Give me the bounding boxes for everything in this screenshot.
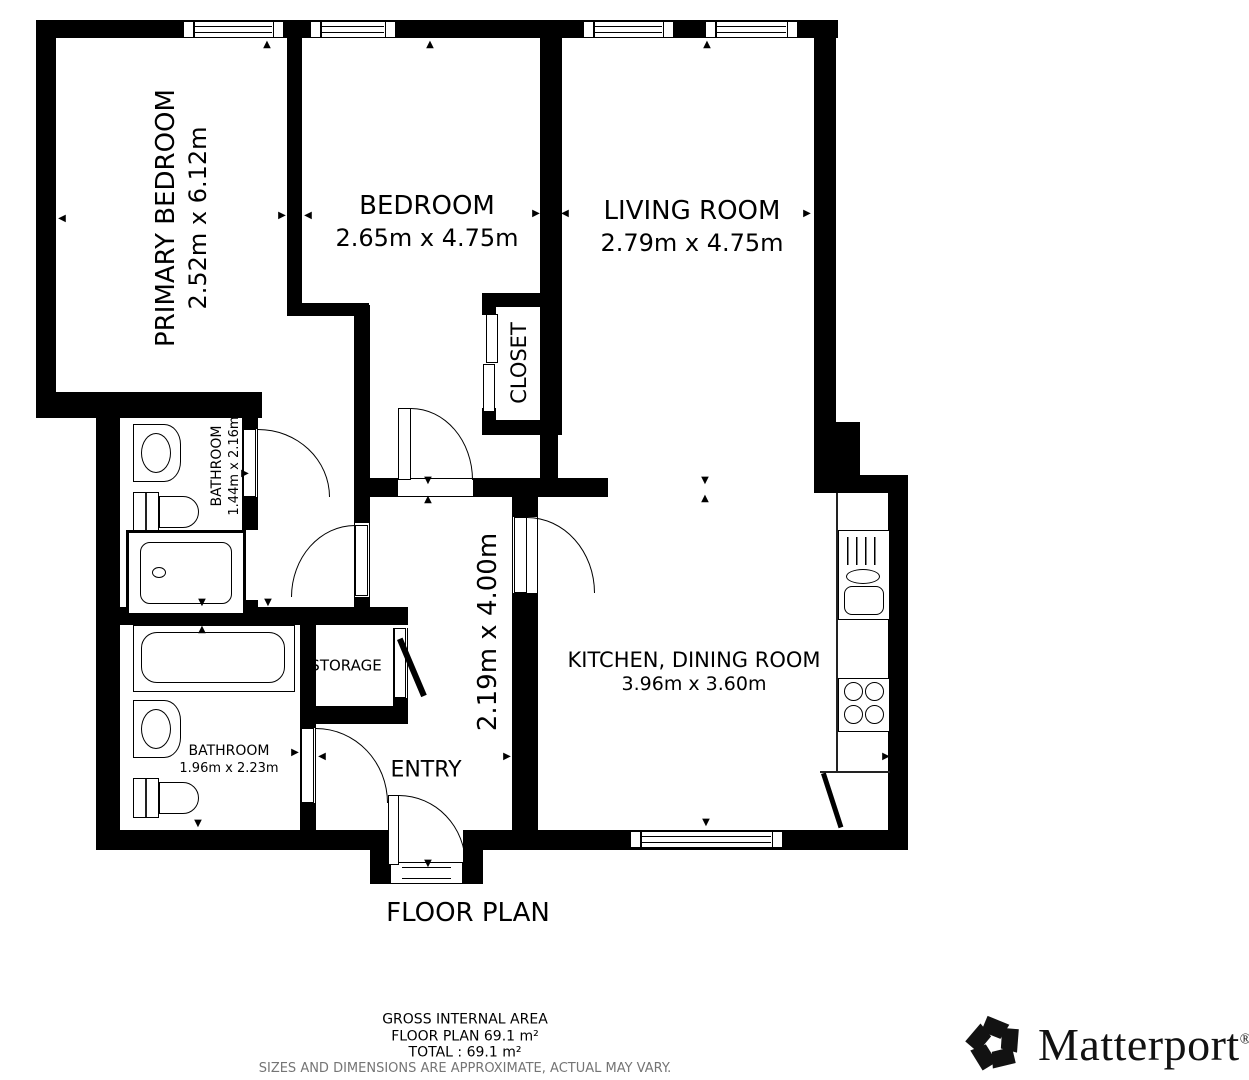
closet-sliding-panel-top	[486, 314, 498, 363]
floor-plan-canvas: ▲ ▲ ▲ ◀ ▶ ◀ ▶ ◀ ▶ ▲ ◀ ▶ ▼ ▼ ▲ ◀ ▶ ▼ ◀ ▶ …	[0, 0, 1249, 1080]
window-living-left	[583, 21, 674, 38]
kitchen-counter-edge-horizontal	[820, 771, 890, 773]
room-label-entry-dimensions: 2.19m x 4.00m	[472, 533, 505, 731]
burner-icon	[865, 705, 884, 724]
door-leaf-kitchen	[514, 517, 527, 593]
dimension-arrow-up-icon: ▲	[198, 625, 206, 635]
window-kitchen-bottom	[630, 831, 783, 848]
dimension-arrow-down-icon: ▼	[424, 859, 432, 869]
window-bedroom	[310, 21, 396, 38]
door-opening-bedroom	[398, 478, 473, 497]
dimension-arrow-right-icon: ▶	[882, 752, 890, 762]
sink-bathroom-lower	[133, 700, 181, 758]
dimension-arrow-down-icon: ▼	[424, 476, 432, 486]
wall-bathroom1-right-mid	[242, 497, 258, 530]
dimension-arrow-left-icon: ◀	[58, 214, 66, 224]
door-leaf-nook	[355, 525, 368, 596]
matterport-wordmark: Matterport®	[1038, 1018, 1249, 1071]
room-label-primary-bedroom: PRIMARY BEDROOM 2.52m x 6.12m	[150, 89, 213, 347]
wall-right-kitchen	[888, 475, 908, 850]
room-label-storage: STORAGE	[310, 657, 381, 676]
wall-closet-left-stub-bottom	[482, 408, 496, 435]
dimension-arrow-down-icon: ▼	[264, 598, 272, 608]
toilet-tank-bathroom-upper	[133, 492, 159, 532]
wall-storage-bottom	[300, 706, 408, 724]
dimension-arrow-up-icon: ▲	[703, 40, 711, 50]
wall-primary-bedroom-bottom	[36, 392, 262, 418]
door-swing-bedroom	[411, 408, 473, 480]
window-primary-bedroom	[183, 21, 284, 38]
dimension-arrow-left-icon: ◀	[528, 752, 536, 762]
drainboard-icon	[847, 537, 883, 565]
dimension-arrow-up-icon: ▲	[701, 494, 709, 504]
dimension-arrow-right-icon: ▶	[278, 211, 286, 221]
door-leaf-bathroom-lower	[301, 728, 314, 803]
registered-trademark-icon: ®	[1240, 1031, 1249, 1047]
sink-bowl-icon	[844, 586, 884, 615]
burner-icon	[844, 705, 863, 724]
matterport-pinwheel-icon	[962, 1012, 1026, 1076]
bathtub-bathroom-lower	[133, 625, 295, 692]
burner-icon	[844, 682, 863, 701]
wall-bedroom-living	[540, 20, 562, 435]
room-label-bathroom-upper: BATHROOM 1.44m x 2.16m	[209, 416, 243, 515]
window-living-right	[705, 21, 798, 38]
door-swing-bathroom-upper	[258, 429, 330, 497]
wall-vestibule-right	[463, 830, 483, 884]
floor-plan-area-value: FLOOR PLAN 69.1 m²	[391, 1028, 539, 1046]
wall-pillar-living	[836, 422, 860, 475]
dimension-arrow-right-icon: ▶	[503, 752, 511, 762]
room-label-closet: CLOSET	[506, 322, 532, 404]
dimension-arrow-down-icon: ▼	[701, 476, 709, 486]
wall-corridor-left-upper	[354, 305, 370, 523]
dimension-arrow-up-icon: ▲	[198, 405, 206, 415]
wall-step-right	[814, 475, 908, 493]
door-swing-entry	[399, 795, 466, 865]
dimension-arrow-down-icon: ▼	[702, 818, 710, 828]
door-swing-kitchen	[527, 517, 595, 593]
door-leaf-entry	[388, 795, 399, 865]
stove-cooktop	[838, 678, 890, 732]
sink-bathroom-upper	[133, 424, 181, 482]
dimension-arrow-right-icon: ▶	[291, 748, 299, 758]
shower-bathroom-upper	[126, 530, 246, 616]
dimension-arrow-left-icon: ◀	[561, 209, 569, 219]
dimension-arrow-up-icon: ▲	[426, 40, 434, 50]
wall-bottom-left	[96, 830, 372, 850]
wall-hall-top-stub	[369, 478, 398, 497]
matterport-logo: Matterport®	[962, 1012, 1249, 1076]
wall-bedroom-left	[287, 20, 302, 316]
closet-sliding-panel-bottom	[483, 364, 495, 412]
wall-bathroom1-right-top	[242, 392, 258, 429]
door-swing-nook	[291, 525, 355, 597]
burner-icon	[865, 682, 884, 701]
wall-vestibule-left	[370, 830, 390, 884]
sink-basin-icon	[141, 709, 171, 749]
total-area-value: TOTAL : 69.1 m²	[409, 1044, 522, 1062]
wall-left-upper	[36, 20, 56, 410]
kitchen-counter-diagonal	[821, 772, 843, 828]
wall-closet-left-stub-top	[482, 293, 496, 315]
dimension-arrow-left-icon: ◀	[318, 752, 326, 762]
door-leaf-bedroom	[398, 408, 411, 480]
dimension-arrow-up-icon: ▲	[424, 495, 432, 505]
wall-bathroom2-right-low	[300, 803, 316, 830]
door-leaf-bathroom-upper	[243, 429, 256, 497]
shower-drain-icon	[152, 567, 166, 578]
door-swing-bathroom-lower	[316, 728, 388, 803]
disclaimer-text: SIZES AND DIMENSIONS ARE APPROXIMATE, AC…	[259, 1061, 672, 1077]
room-label-living-room: LIVING ROOM 2.79m x 4.75m	[600, 195, 783, 258]
kitchen-sink-unit	[838, 530, 890, 620]
wall-right-living	[814, 20, 836, 475]
dimension-arrow-up-icon: ▲	[263, 40, 271, 50]
wall-below-closet	[540, 435, 558, 478]
dimension-arrow-down-icon: ▼	[198, 598, 206, 608]
dimension-arrow-left-icon: ◀	[112, 748, 120, 758]
room-label-bedroom: BEDROOM 2.65m x 4.75m	[335, 190, 518, 253]
dimension-arrow-down-icon: ▼	[194, 819, 202, 829]
gross-internal-area-label: GROSS INTERNAL AREA	[382, 1011, 548, 1029]
sink-basin-icon	[846, 569, 880, 584]
dimension-arrow-left-icon: ◀	[304, 211, 312, 221]
dimension-arrow-right-icon: ▶	[803, 209, 811, 219]
wall-storage-right-low	[393, 698, 408, 724]
toilet-tank-bathroom-lower	[133, 778, 159, 818]
toilet-bowl-bathroom-upper	[159, 496, 199, 528]
wall-hall-top-right	[473, 478, 608, 497]
dimension-arrow-left-icon: ◀	[112, 469, 120, 479]
page-title: FLOOR PLAN	[386, 897, 550, 930]
wall-corridor-kitchen-low	[512, 593, 538, 830]
room-label-kitchen-dining: KITCHEN, DINING ROOM 3.96m x 3.60m	[567, 647, 820, 697]
dimension-arrow-right-icon: ▶	[532, 209, 540, 219]
room-label-entry: ENTRY	[390, 756, 461, 784]
room-label-bathroom-lower: BATHROOM 1.96m x 2.23m	[179, 743, 278, 777]
sink-basin-icon	[141, 433, 171, 473]
toilet-bowl-bathroom-lower	[159, 782, 199, 814]
